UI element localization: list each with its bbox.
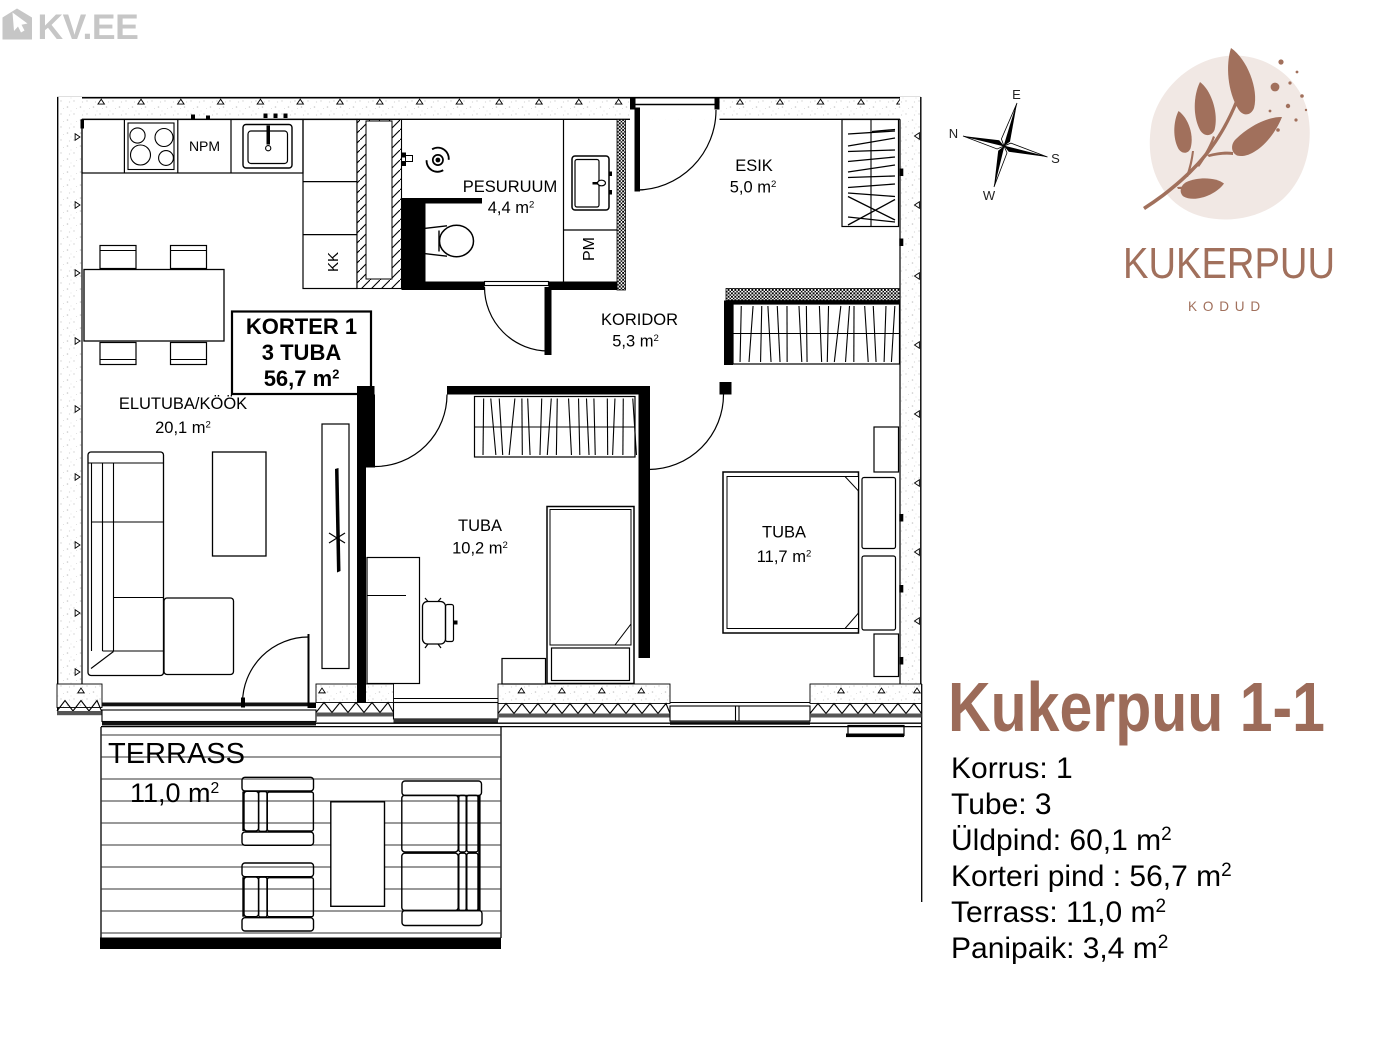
svg-text:N: N [949, 126, 958, 141]
svg-text:KODUD: KODUD [1188, 298, 1266, 314]
svg-text:10,2 m2: 10,2 m2 [452, 540, 508, 558]
svg-text:Korteri pind : 56,7 m2: Korteri pind : 56,7 m2 [951, 860, 1232, 893]
svg-text:KORTER 1: KORTER 1 [246, 314, 357, 339]
svg-text:4,4 m2: 4,4 m2 [488, 199, 535, 217]
svg-text:NPM: NPM [189, 138, 220, 154]
svg-text:11,7 m2: 11,7 m2 [757, 548, 812, 566]
svg-text:TERRASS: TERRASS [108, 738, 245, 770]
svg-text:PESURUUM: PESURUUM [463, 178, 557, 196]
svg-text:TUBA: TUBA [458, 517, 502, 535]
svg-text:PM: PM [581, 237, 598, 261]
svg-text:ELUTUBA/KÖÖK: ELUTUBA/KÖÖK [119, 395, 247, 413]
svg-text:E: E [1012, 87, 1021, 102]
svg-text:KORIDOR: KORIDOR [601, 311, 678, 329]
svg-text:KV.EE: KV.EE [38, 7, 139, 47]
svg-text:3 TUBA: 3 TUBA [262, 340, 342, 365]
svg-text:ESIK: ESIK [735, 157, 773, 175]
svg-text:Terrass: 11,0 m2: Terrass: 11,0 m2 [951, 896, 1166, 929]
svg-text:11,0 m2: 11,0 m2 [130, 778, 219, 808]
svg-text:Tube: 3: Tube: 3 [951, 788, 1052, 821]
svg-text:56,7 m2: 56,7 m2 [264, 366, 340, 391]
svg-text:5,0 m2: 5,0 m2 [730, 179, 777, 197]
svg-text:W: W [983, 188, 996, 203]
svg-text:Kukerpuu 1-1: Kukerpuu 1-1 [948, 668, 1325, 746]
svg-text:Korrus: 1: Korrus: 1 [951, 752, 1073, 785]
svg-text:TUBA: TUBA [762, 524, 806, 542]
svg-text:5,3 m2: 5,3 m2 [612, 333, 659, 351]
svg-text:S: S [1051, 151, 1060, 166]
svg-text:KUKERPUU: KUKERPUU [1123, 239, 1335, 288]
svg-text:20,1 m2: 20,1 m2 [155, 419, 211, 437]
svg-text:Üldpind: 60,1 m2: Üldpind: 60,1 m2 [951, 824, 1172, 857]
svg-text:Panipaik: 3,4 m2: Panipaik: 3,4 m2 [951, 932, 1168, 965]
svg-text:KK: KK [325, 252, 342, 272]
